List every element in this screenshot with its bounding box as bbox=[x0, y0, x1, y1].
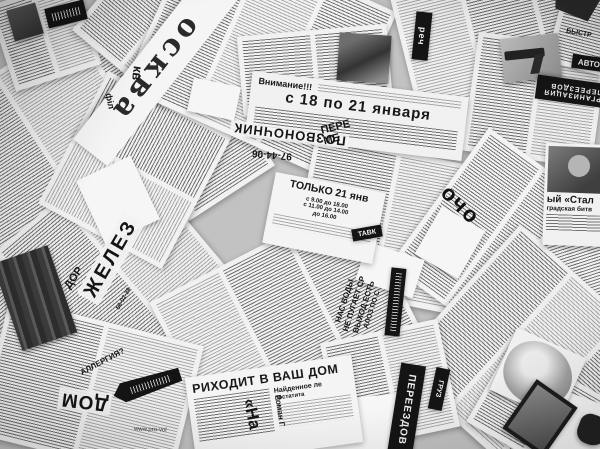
article-body bbox=[546, 214, 600, 232]
face-shape bbox=[567, 155, 590, 178]
banner-text: реч bbox=[416, 26, 428, 45]
vertical-letters: кв bbox=[129, 65, 146, 81]
article-clipping: ый «Стал градская битв bbox=[542, 143, 600, 247]
movers-banner-text: ПЕРЕЕЗДОВ bbox=[395, 374, 417, 446]
newspaper-collage-photo: осква кв філ реч Внимание!!! с 18 по 21 … bbox=[0, 0, 600, 449]
article-subheadline: градская битв bbox=[546, 205, 600, 215]
rates-text: ТАВК bbox=[357, 228, 376, 238]
illegible-white-text bbox=[389, 273, 401, 331]
portrait-photo bbox=[547, 146, 600, 194]
cargo-text: ГРУЗ bbox=[434, 380, 444, 398]
illegible-white-text bbox=[51, 7, 80, 22]
news-photo bbox=[336, 32, 391, 84]
auto-ad-text: АВТО bbox=[577, 57, 600, 69]
article-body bbox=[194, 389, 275, 443]
website-url: www.pro-vol bbox=[134, 426, 167, 433]
handgun-photo bbox=[500, 33, 562, 83]
